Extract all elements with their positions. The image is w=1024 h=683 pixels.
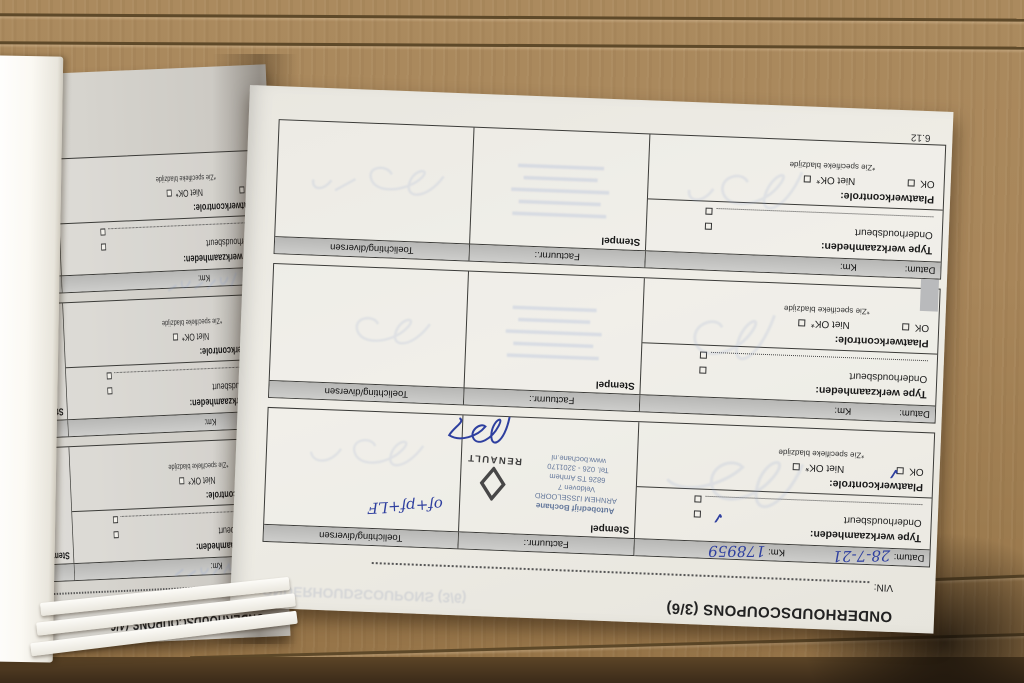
niet-ok-checkbox <box>792 463 799 470</box>
datum-label: Datum: <box>905 264 936 276</box>
onderhoudsbeurt-checkbox <box>101 243 106 250</box>
ok-label: OK <box>920 178 935 190</box>
onderhoudsbeurt-checkbox <box>107 387 112 394</box>
toelichting-label: Toelichting/diversen <box>319 529 403 543</box>
ok-checkbox <box>902 323 909 330</box>
stempel-label: Stempel <box>601 235 640 247</box>
dealer-stamp: Autobedrijf Bochane ARNHEM IJSSELOORD Ve… <box>464 446 631 517</box>
datum-label: Datum: <box>899 408 930 420</box>
right-page-content: ONDERHOUDSCOUPONS (3/6) ONDERHOUDSCOUPON… <box>230 85 954 634</box>
spacer <box>106 243 206 247</box>
onderhoudsbeurt-checkbox <box>705 223 712 230</box>
toelichting-label: Toelichting/diversen <box>330 242 414 256</box>
renault-logo: RENAULT <box>465 452 522 503</box>
onderhoudsbeurt-label: Onderhoudsbeurt <box>844 514 922 528</box>
niet-ok-checkbox <box>179 477 184 484</box>
renault-diamond-icon <box>478 466 506 502</box>
datum-label: Datum: <box>894 552 925 564</box>
custom-work-checkbox <box>107 373 112 380</box>
maintenance-coupon-filled: Datum: 28-7-21 Km: 178959 Factuurnr.: To… <box>262 407 935 568</box>
custom-work-checkbox <box>694 496 701 503</box>
coupon-fields: Type werkzaamheden: Onderhoudsbeurt Plaa… <box>645 134 945 261</box>
ok-label: OK <box>915 322 930 334</box>
niet-ok-label: Niet OK* <box>182 330 210 342</box>
datum-handwritten-value: 28-7-21 <box>833 546 891 565</box>
km-label: Km: <box>198 272 210 284</box>
onderhoudsbeurt-label: Onderhoudsbeurt <box>855 226 933 240</box>
ok-checkbox <box>907 179 914 186</box>
spacer <box>119 530 219 534</box>
factuurnr-label: Factuurnr.: <box>523 537 569 550</box>
stamp-box: Stempel <box>464 272 644 395</box>
ink-bleedthrough <box>300 151 452 213</box>
niet-ok-label: Niet OK* <box>816 174 855 186</box>
custom-work-checkbox <box>113 517 118 524</box>
lifted-page-edge <box>0 55 63 662</box>
spacer <box>706 370 849 375</box>
maintenance-coupon: Datum: Km: Factuurnr.: Toelichting/diver… <box>268 263 941 424</box>
spacer <box>850 325 902 327</box>
niet-ok-checkbox <box>173 333 178 340</box>
km-handwritten-value: 178959 <box>708 542 765 560</box>
onderhoudsbeurt-checkbox <box>114 531 119 538</box>
page-number: 6.12 <box>911 131 931 143</box>
km-label: Km: <box>840 261 857 273</box>
zie-specifieke-note: *Zie specifieke bladzijde <box>647 443 864 460</box>
stempel-label: Stempel <box>590 522 629 534</box>
zie-specifieke-note: *Zie specifieke bladzijde <box>658 155 875 172</box>
onderhoudsbeurt-checkbox <box>699 366 706 373</box>
onderhoudsbeurt-label: Onderhoudsbeurt <box>849 370 927 384</box>
factuurnr-label: Factuurnr.: <box>529 393 575 406</box>
niet-ok-label: Niet OK* <box>811 318 850 330</box>
dealer-stamp-address: Autobedrijf Bochane ARNHEM IJSSELOORD Ve… <box>523 450 631 517</box>
spacer <box>712 226 855 231</box>
ink-bleedthrough <box>290 427 432 482</box>
booklet-right-page: ONDERHOUDSCOUPONS (3/6) ONDERHOUDSCOUPON… <box>230 85 954 634</box>
notes-area <box>270 264 468 387</box>
km-label: Km: <box>834 405 851 417</box>
custom-work-checkbox <box>705 208 712 215</box>
niet-ok-checkbox <box>803 175 810 182</box>
onderhoudsbeurt-checkmark: ✓ <box>711 509 724 526</box>
spacer <box>855 181 907 183</box>
niet-ok-checkbox <box>166 190 171 197</box>
onderhoudsbeurt-checkbox <box>694 510 701 517</box>
ink-bleedthrough <box>299 299 441 364</box>
vin-label: VIN: <box>874 581 894 593</box>
photo-of-maintenance-booklet: ONDERHOUDSCOUPONS (4/6 VIN: Datum: Km: <box>0 0 1024 683</box>
factuurnr-label: Factuurnr.: <box>534 250 580 263</box>
niet-ok-checkbox <box>798 319 805 326</box>
notes-area: of+pf+LF <box>264 408 462 531</box>
niet-ok-label: Niet OK* <box>175 186 203 198</box>
page-title: ONDERHOUDSCOUPONS (3/6) <box>666 599 893 625</box>
vin-row: VIN: <box>371 562 893 593</box>
zie-specifieke-note: *Zie specifieke bladzijde <box>653 299 870 316</box>
custom-work-checkbox <box>100 229 105 236</box>
vin-dotted-line <box>371 562 869 592</box>
km-label: Km: <box>768 547 785 559</box>
stamp-box: Stempel Autobedrijf Bochane ARNHEM IJSSE… <box>458 415 638 538</box>
stempel-label: Stempel <box>596 379 635 391</box>
ok-checkmark: ✓ <box>887 465 900 482</box>
stamp-bleedthrough <box>493 297 615 368</box>
coupon-fields: Type werkzaamheden: Onderhoudsbeurt Plaa… <box>639 278 939 405</box>
maintenance-coupon: Datum: Km: Factuurnr.: Toelichting/diver… <box>274 119 947 280</box>
notes-area <box>275 120 473 243</box>
toelichting-handwritten-note: of+pf+LF <box>367 495 443 517</box>
niet-ok-label: Niet OK* <box>805 462 844 474</box>
custom-work-checkbox <box>700 352 707 359</box>
ok-label: OK <box>909 466 924 478</box>
toelichting-label: Toelichting/diversen <box>324 386 408 400</box>
spacer <box>112 386 212 390</box>
stamp-box: Stempel <box>469 128 649 251</box>
section-index-tab <box>920 279 939 312</box>
coupon-fields: Type werkzaamheden: Onderhoudsbeurt ✓ <box>634 422 934 549</box>
stamp-bleedthrough <box>496 151 625 226</box>
